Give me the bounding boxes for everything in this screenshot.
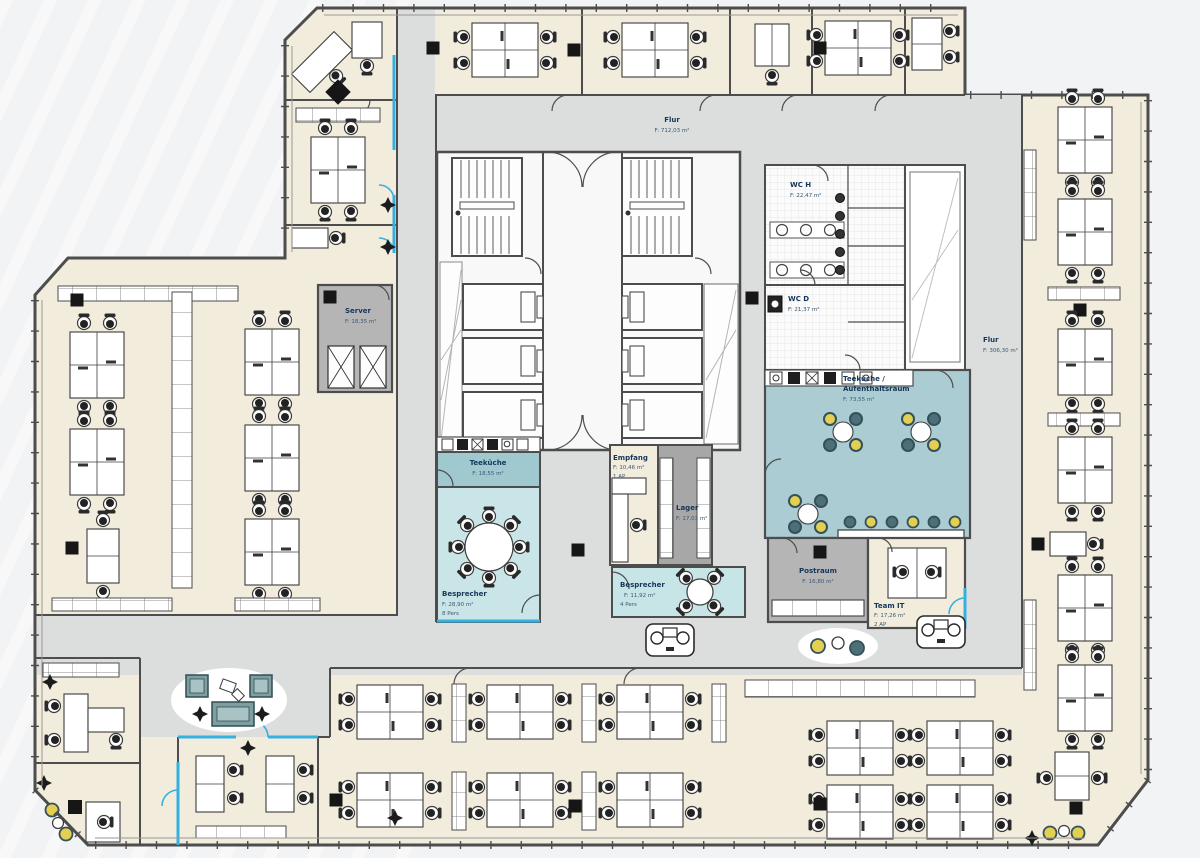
svg-text:F: 21,37 m²: F: 21,37 m² bbox=[788, 306, 819, 313]
svg-text:F: 22,47 m²: F: 22,47 m² bbox=[790, 192, 821, 199]
svg-text:F: 16,80 m²: F: 16,80 m² bbox=[802, 578, 833, 585]
left-wing-open-office bbox=[52, 286, 320, 611]
kitchen-counter bbox=[765, 370, 913, 386]
label-aufenthaltsraum: Teeküche / bbox=[843, 375, 885, 383]
lounge-area bbox=[171, 668, 287, 732]
floor-plan-drawing: Flur F: 712,03 m² Flur F: 306,30 m² Serv… bbox=[0, 0, 1200, 858]
central-core bbox=[437, 152, 740, 450]
svg-text:F: 306,30 m²: F: 306,30 m² bbox=[983, 347, 1018, 354]
label-teekueche: Teeküche bbox=[470, 459, 507, 467]
svg-text:Aufenthaltsraum: Aufenthaltsraum bbox=[843, 385, 910, 393]
printer-station bbox=[646, 624, 694, 656]
waiting-area bbox=[798, 628, 878, 664]
label-empfang: Empfang bbox=[613, 454, 648, 462]
svg-text:F: 712,03 m²: F: 712,03 m² bbox=[655, 127, 690, 134]
label-lager: Lager bbox=[676, 504, 699, 512]
svg-text:2 AP: 2 AP bbox=[874, 622, 887, 628]
besprecher-klein bbox=[612, 567, 745, 618]
svg-text:F: 10,46 m²: F: 10,46 m² bbox=[613, 464, 644, 471]
label-flur-top: Flur bbox=[664, 116, 680, 124]
svg-text:F: 11,92 m²: F: 11,92 m² bbox=[624, 592, 655, 599]
printer-station bbox=[917, 616, 965, 648]
label-wc-d: WC D bbox=[788, 295, 809, 303]
floor-plan-canvas: Flur F: 712,03 m² Flur F: 306,30 m² Serv… bbox=[0, 0, 1200, 858]
svg-text:8 Pers: 8 Pers bbox=[442, 611, 459, 617]
glazed-shaft bbox=[905, 165, 965, 370]
svg-text:F: 28,90 m²: F: 28,90 m² bbox=[442, 601, 473, 608]
label-server: Server bbox=[345, 307, 372, 315]
svg-text:4 Pers: 4 Pers bbox=[620, 602, 637, 608]
staircase-left bbox=[452, 158, 522, 256]
label-besprecher-klein: Besprecher bbox=[620, 581, 665, 589]
server-room bbox=[318, 285, 392, 392]
label-team-it: Team IT bbox=[874, 602, 905, 610]
label-flur-right: Flur bbox=[983, 336, 999, 344]
svg-text:F: 17,03 m²: F: 17,03 m² bbox=[676, 515, 707, 522]
svg-text:F: 18,35 m²: F: 18,35 m² bbox=[345, 318, 376, 325]
shaft-hatched-left bbox=[440, 262, 462, 448]
empfang bbox=[610, 445, 658, 565]
label-besprecher-gross: Besprecher bbox=[442, 590, 487, 598]
staircase-right bbox=[622, 158, 692, 256]
wc-block bbox=[765, 165, 905, 370]
elevator-bank-right bbox=[622, 284, 738, 444]
svg-text:1 AP: 1 AP bbox=[613, 474, 626, 480]
svg-text:F: 18,55 m²: F: 18,55 m² bbox=[472, 470, 503, 477]
label-wc-h: WC H bbox=[790, 181, 811, 189]
svg-text:F: 73,55 m²: F: 73,55 m² bbox=[843, 396, 874, 403]
svg-text:F: 17,26 m²: F: 17,26 m² bbox=[874, 612, 905, 619]
elevator-bank-left bbox=[463, 284, 543, 438]
label-postraum: Postraum bbox=[799, 567, 837, 575]
